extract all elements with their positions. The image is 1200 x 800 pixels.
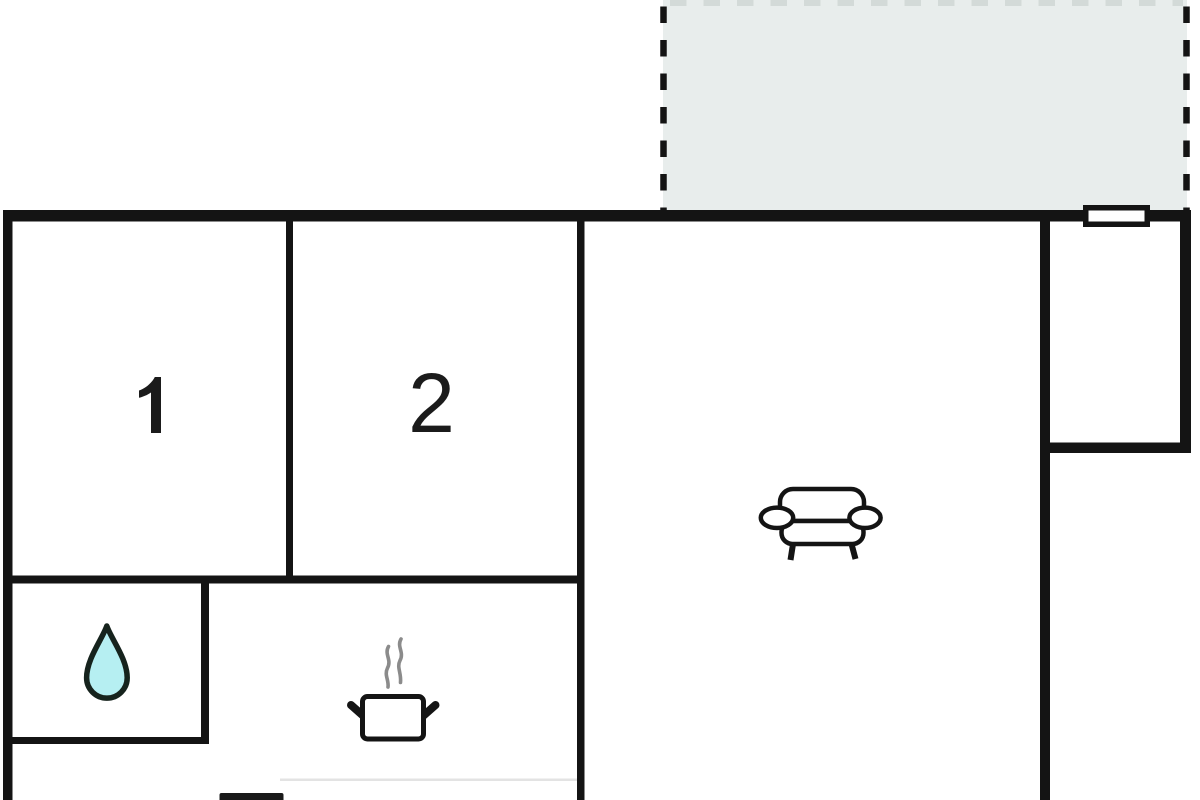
svg-text:2: 2 bbox=[408, 356, 455, 450]
